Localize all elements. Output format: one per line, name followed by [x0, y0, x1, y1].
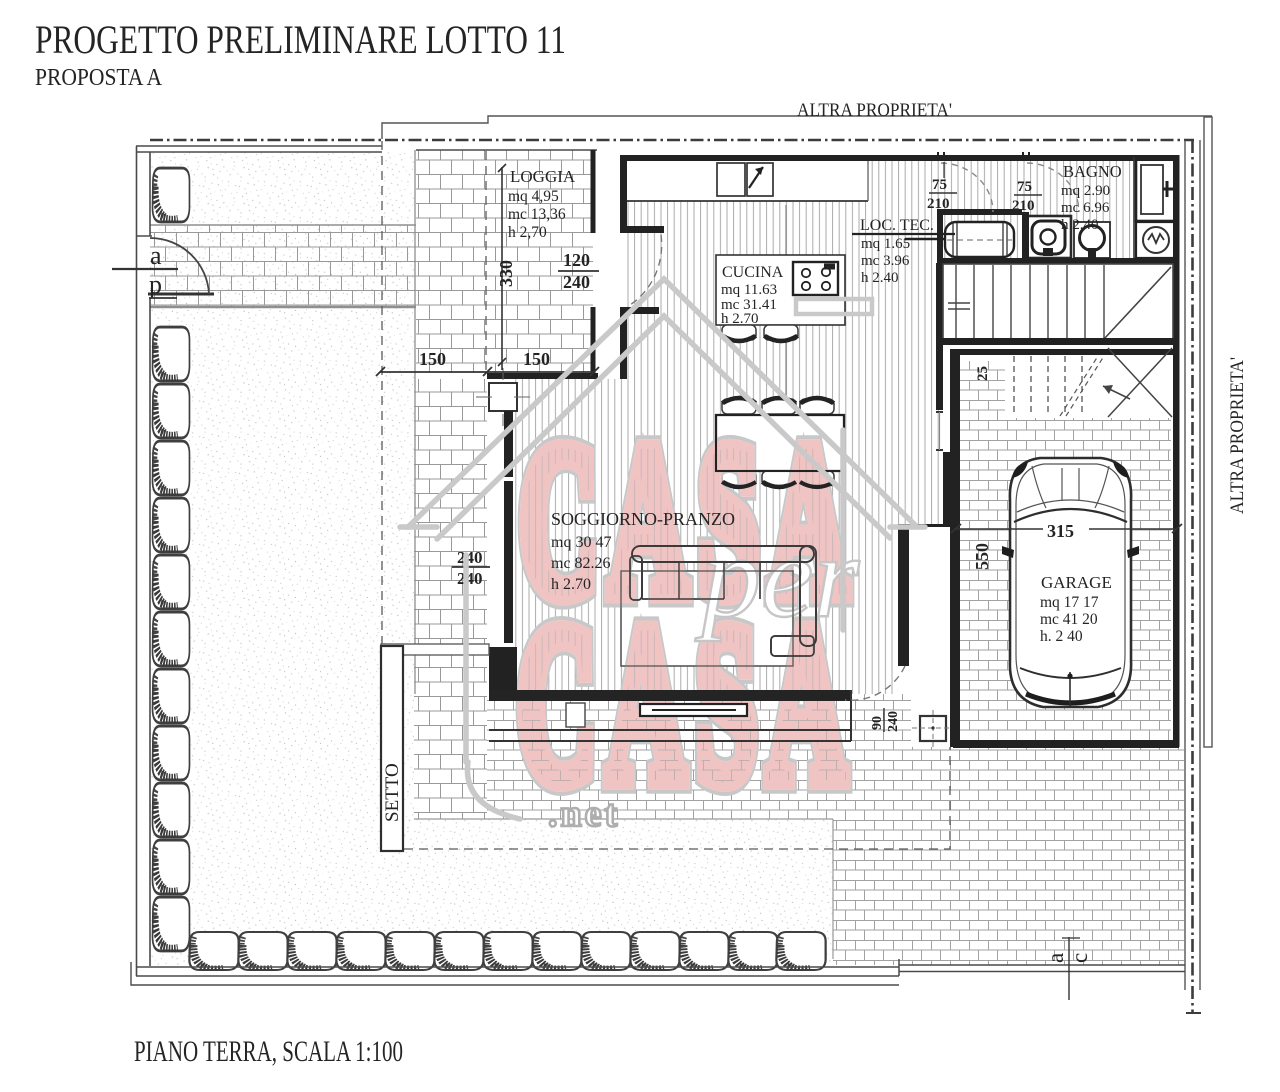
svg-text:PROPOSTA A: PROPOSTA A — [35, 65, 163, 91]
svg-text:550: 550 — [972, 543, 992, 570]
svg-text:75: 75 — [1017, 179, 1032, 195]
svg-text:h 2,70: h 2,70 — [508, 224, 547, 241]
svg-text:ALTRA PROPRIETA': ALTRA PROPRIETA' — [1228, 357, 1248, 514]
svg-text:mq 17 17: mq 17 17 — [1040, 594, 1099, 611]
svg-text:mc 41 20: mc 41 20 — [1040, 611, 1098, 628]
svg-text:mc 82.26: mc 82.26 — [551, 555, 611, 572]
svg-text:p: p — [149, 270, 162, 299]
svg-text:mq 1.65: mq 1.65 — [861, 236, 910, 252]
svg-text:SETTO: SETTO — [382, 763, 403, 822]
svg-text:315: 315 — [1047, 521, 1074, 541]
svg-text:h 2.40: h 2.40 — [861, 270, 899, 286]
svg-text:mq 30 47: mq 30 47 — [551, 534, 611, 551]
svg-text:SOGGIORNO-PRANZO: SOGGIORNO-PRANZO — [551, 509, 735, 529]
svg-text:210: 210 — [927, 196, 950, 212]
svg-text:h 2.70: h 2.70 — [721, 311, 759, 327]
svg-text:mq 11.63: mq 11.63 — [721, 282, 777, 298]
svg-text:330: 330 — [496, 260, 516, 287]
svg-text:240: 240 — [563, 272, 590, 292]
svg-text:a: a — [1043, 953, 1068, 963]
svg-text:GARAGE: GARAGE — [1041, 573, 1112, 592]
svg-text:210: 210 — [1012, 198, 1035, 214]
svg-text:120: 120 — [563, 250, 590, 270]
svg-text:150: 150 — [523, 349, 550, 369]
svg-text:240: 240 — [886, 711, 901, 732]
svg-text:per: per — [695, 511, 860, 642]
svg-text:PIANO TERRA, SCALA 1:100: PIANO TERRA, SCALA 1:100 — [134, 1035, 403, 1068]
svg-text:150: 150 — [419, 349, 446, 369]
svg-text:ALTRA PROPRIETA': ALTRA PROPRIETA' — [797, 101, 952, 121]
svg-text:75: 75 — [932, 177, 947, 193]
svg-text:c: c — [1067, 953, 1092, 963]
svg-text:a: a — [150, 241, 162, 270]
svg-text:240: 240 — [457, 569, 483, 588]
svg-text:BAGNO: BAGNO — [1063, 162, 1122, 181]
svg-text:mq 4,95: mq 4,95 — [508, 188, 559, 205]
svg-text:.net: .net — [548, 793, 620, 835]
svg-text:25: 25 — [975, 366, 991, 381]
svg-text:h 2.70: h 2.70 — [551, 576, 591, 593]
svg-text:PROGETTO PRELIMINARE LOTTO 11: PROGETTO PRELIMINARE LOTTO 11 — [35, 17, 566, 62]
svg-text:mc 6.96: mc 6.96 — [1061, 200, 1110, 216]
svg-text:mq 2.90: mq 2.90 — [1061, 183, 1110, 199]
svg-text:h 2.40: h 2.40 — [1061, 217, 1099, 233]
svg-text:90: 90 — [870, 716, 885, 730]
svg-text:h. 2 40: h. 2 40 — [1040, 628, 1083, 645]
svg-text:CUCINA: CUCINA — [722, 264, 784, 281]
svg-text:LOC. TEC.: LOC. TEC. — [860, 217, 934, 234]
svg-text:LOGGIA: LOGGIA — [510, 167, 576, 186]
svg-text:mc 13,36: mc 13,36 — [508, 206, 566, 223]
svg-text:mc 3.96: mc 3.96 — [861, 253, 910, 269]
svg-text:240: 240 — [457, 548, 483, 567]
